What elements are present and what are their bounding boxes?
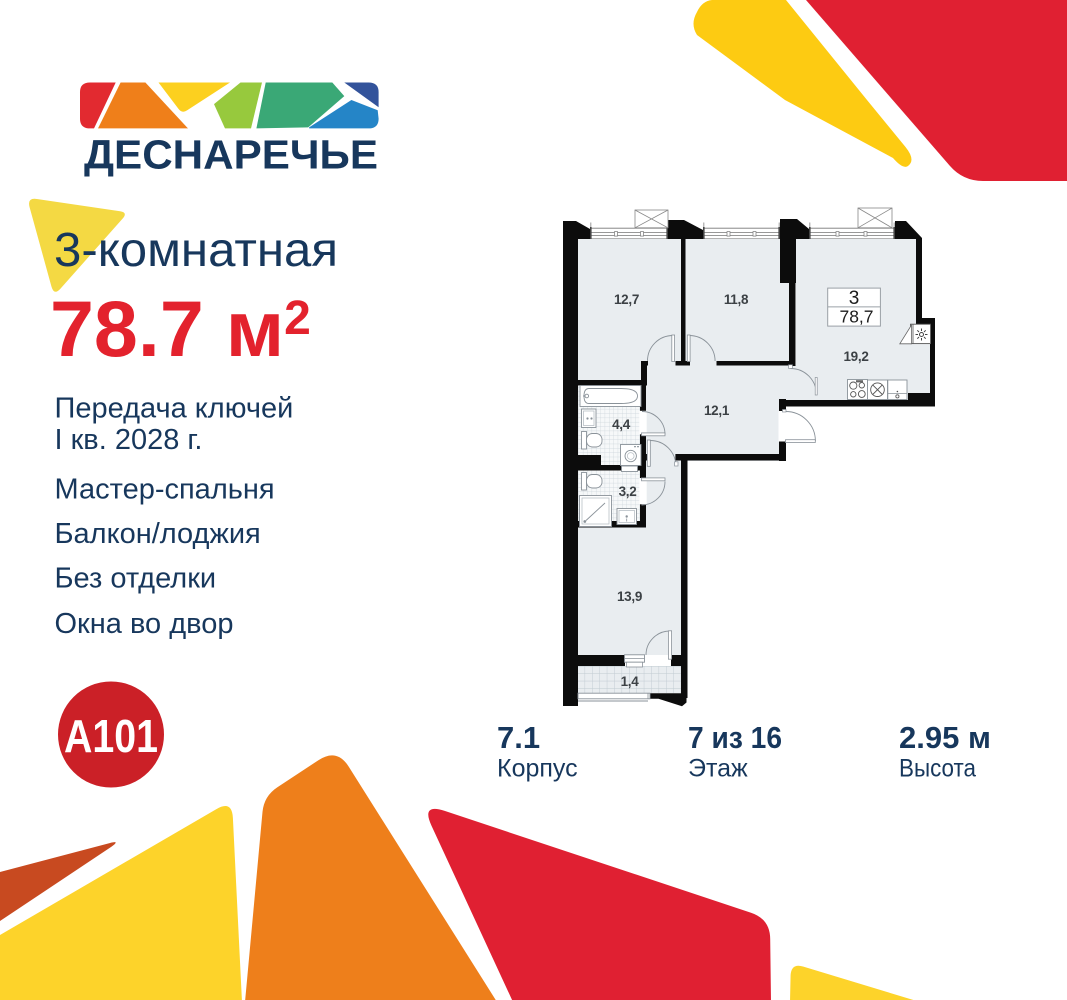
svg-text:13,9: 13,9	[617, 589, 642, 604]
svg-text:3-комнатная: 3-комнатная	[54, 224, 338, 277]
svg-text:Без отделки: Без отделки	[55, 563, 217, 595]
svg-text:7.1: 7.1	[497, 720, 540, 755]
svg-text:Этаж: Этаж	[688, 755, 748, 783]
svg-text:7 из 16: 7 из 16	[688, 720, 782, 755]
svg-text:78.7 м2: 78.7 м2	[50, 284, 311, 373]
svg-text:Высота: Высота	[899, 755, 976, 783]
svg-text:2.95 м: 2.95 м	[899, 720, 991, 755]
svg-text:Балкон/лоджия: Балкон/лоджия	[55, 518, 261, 550]
svg-text:19,2: 19,2	[843, 349, 868, 364]
svg-text:Окна во двор: Окна во двор	[55, 608, 234, 640]
svg-text:11,8: 11,8	[724, 292, 749, 307]
svg-text:3,2: 3,2	[619, 484, 637, 499]
svg-text:12,7: 12,7	[614, 292, 639, 307]
svg-text:Передача ключей: Передача ключей	[55, 393, 294, 425]
svg-text:А101: А101	[64, 710, 158, 762]
svg-text:I кв. 2028 г.: I кв. 2028 г.	[55, 424, 203, 456]
svg-text:4,4: 4,4	[612, 417, 631, 432]
svg-text:78,7: 78,7	[839, 307, 873, 327]
svg-text:1,4: 1,4	[621, 674, 640, 689]
svg-text:12,1: 12,1	[704, 403, 730, 418]
svg-text:Мастер-спальня: Мастер-спальня	[55, 474, 275, 506]
svg-text:ДЕСНАРЕЧЬЕ: ДЕСНАРЕЧЬЕ	[84, 132, 378, 178]
svg-text:Корпус: Корпус	[497, 755, 578, 783]
